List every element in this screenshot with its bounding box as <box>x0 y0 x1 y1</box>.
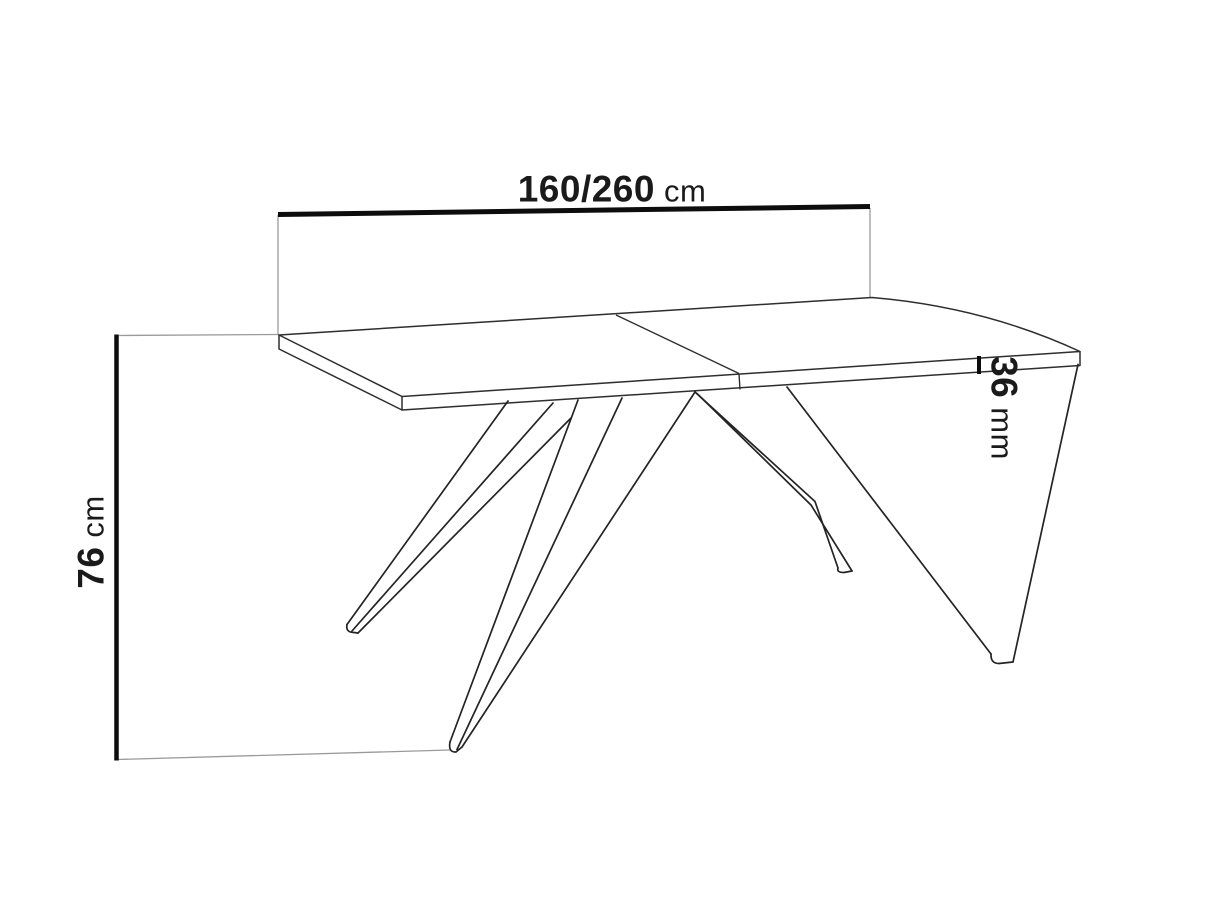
extension-lines <box>117 208 870 760</box>
dimension-lines <box>117 207 980 761</box>
length-unit: cm <box>664 176 706 207</box>
floor-line <box>117 750 450 760</box>
thickness-dimension-label: 36 mm <box>986 356 1023 460</box>
height-value: 76 <box>73 547 110 589</box>
table-leg-front-left <box>450 392 695 752</box>
table-leg-front-right <box>787 365 1078 664</box>
tabletop-edge-seam-line <box>739 374 740 390</box>
tabletop-top-surface <box>279 298 1080 397</box>
tabletop <box>279 298 1080 411</box>
height-unit: cm <box>78 495 109 537</box>
leg-foot <box>991 654 1013 664</box>
diagram-canvas: 160/260 cm 76 cm 36 mm <box>0 0 1214 911</box>
length-value: 160/260 <box>518 171 655 208</box>
height-extension-line-top <box>119 335 279 336</box>
length-dimension-label: 160/260 cm <box>518 171 707 208</box>
table-leg-back-left <box>347 401 571 633</box>
height-dimension-label: 76 cm <box>73 495 110 588</box>
table-legs <box>347 365 1078 753</box>
table-leg-back-right <box>695 392 852 573</box>
table-line-drawing <box>0 0 1214 911</box>
thickness-value: 36 <box>986 356 1023 398</box>
thickness-unit: mm <box>987 407 1018 460</box>
